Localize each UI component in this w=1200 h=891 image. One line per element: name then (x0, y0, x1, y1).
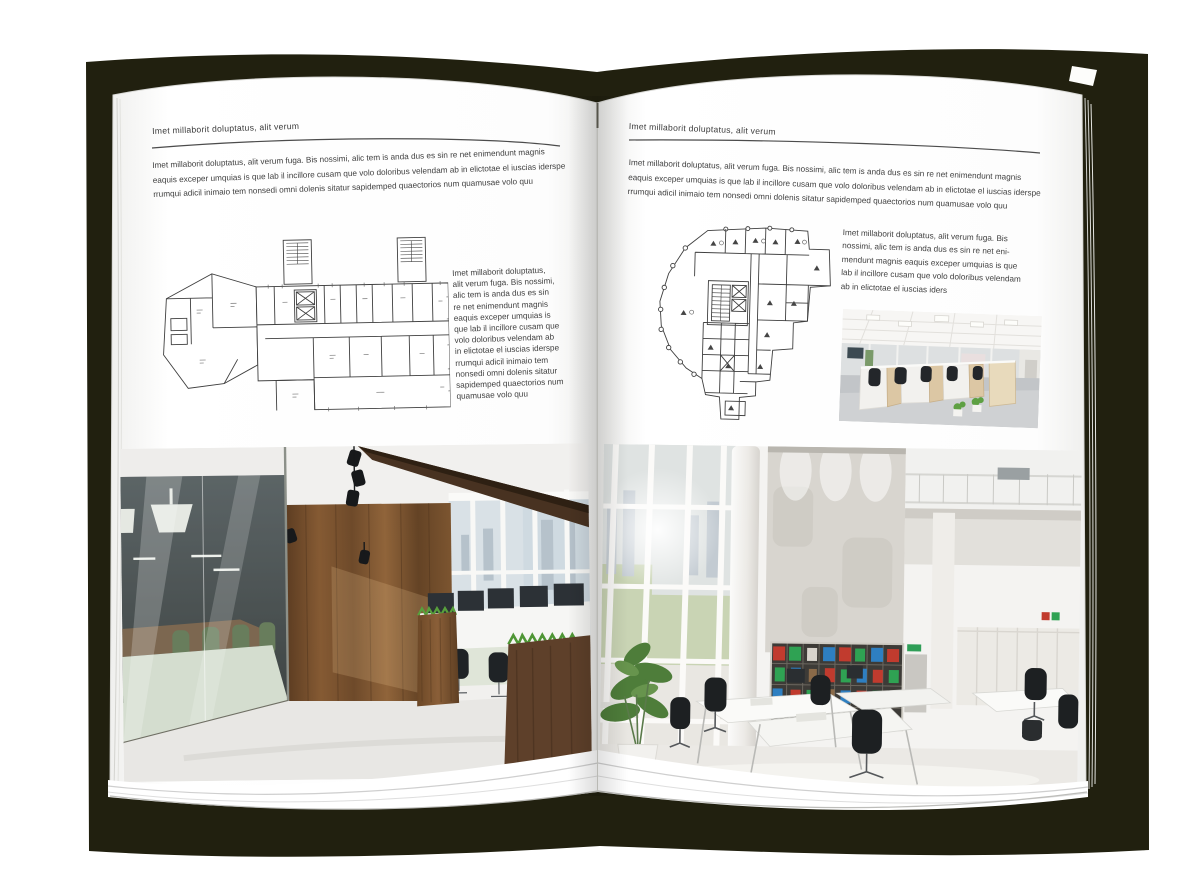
left-office-photo (120, 443, 592, 782)
magazine-spread-mockup: Imet millaborit doluptatus, alit verum I… (0, 0, 1200, 891)
right-side-text: Imet millaborit doluptatus, alit verum f… (840, 226, 1022, 300)
right-office-photo (599, 444, 1082, 797)
left-side-text: Imet millaborit doluptatus, alit verum f… (452, 264, 564, 402)
right-header-rule (627, 136, 1043, 158)
right-small-office-photo (839, 309, 1042, 428)
left-floor-plan (155, 227, 451, 419)
right-floor-plan (643, 221, 850, 426)
